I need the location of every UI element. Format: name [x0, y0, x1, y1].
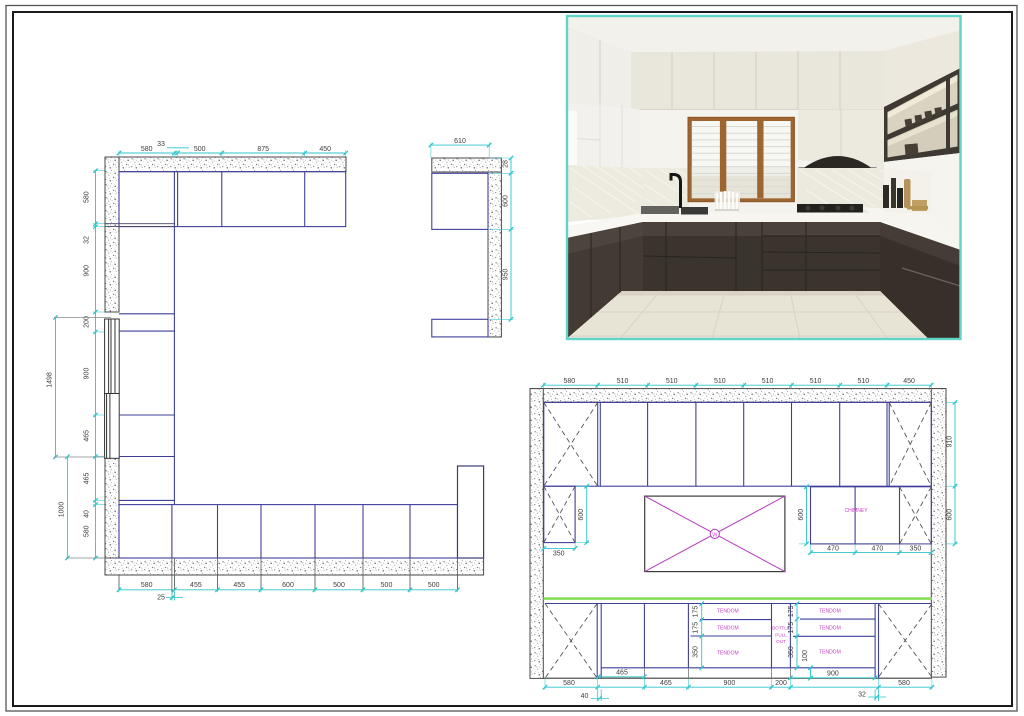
svg-text:1000: 1000: [58, 502, 65, 518]
svg-text:500: 500: [428, 582, 440, 589]
svg-text:40: 40: [581, 693, 589, 700]
svg-text:350: 350: [693, 646, 700, 658]
svg-text:TENDOM: TENDOM: [819, 625, 841, 631]
svg-text:175: 175: [788, 605, 795, 617]
svg-text:580: 580: [84, 525, 91, 537]
svg-text:600: 600: [282, 582, 294, 589]
svg-text:455: 455: [233, 582, 245, 589]
svg-text:580: 580: [141, 146, 153, 153]
svg-text:33: 33: [157, 141, 165, 148]
svg-text:510: 510: [666, 378, 678, 385]
svg-text:510: 510: [714, 378, 726, 385]
svg-text:465: 465: [84, 430, 91, 442]
svg-text:450: 450: [319, 146, 331, 153]
svg-text:465: 465: [660, 680, 672, 687]
svg-text:900: 900: [84, 265, 91, 277]
svg-text:580: 580: [898, 680, 910, 687]
svg-text:CHIMNEY: CHIMNEY: [844, 508, 868, 514]
svg-text:PULL: PULL: [775, 633, 787, 638]
svg-text:455: 455: [190, 582, 202, 589]
svg-text:950: 950: [503, 268, 510, 280]
svg-text:TENDOM: TENDOM: [819, 650, 841, 656]
svg-text:OUT: OUT: [776, 639, 786, 644]
svg-text:32: 32: [84, 236, 91, 244]
svg-text:1498: 1498: [47, 372, 54, 388]
svg-text:TENDOM: TENDOM: [717, 609, 739, 615]
svg-text:470: 470: [827, 545, 839, 552]
svg-text:510: 510: [617, 378, 629, 385]
svg-text:580: 580: [563, 378, 575, 385]
svg-text:500: 500: [194, 146, 206, 153]
svg-text:875: 875: [257, 146, 269, 153]
svg-text:500: 500: [381, 582, 393, 589]
svg-text:465: 465: [616, 670, 628, 677]
svg-text:900: 900: [827, 670, 839, 677]
svg-text:580: 580: [84, 191, 91, 203]
svg-text:32: 32: [858, 692, 866, 699]
svg-text:40: 40: [84, 510, 91, 518]
svg-text:350: 350: [553, 550, 565, 557]
svg-text:TENDOM: TENDOM: [717, 625, 739, 631]
svg-text:600: 600: [578, 509, 585, 521]
svg-text:610: 610: [454, 138, 466, 145]
svg-text:600: 600: [947, 509, 954, 521]
svg-text:600: 600: [503, 195, 510, 207]
svg-text:510: 510: [810, 378, 822, 385]
svg-text:175: 175: [788, 622, 795, 634]
svg-text:175: 175: [693, 606, 700, 618]
svg-text:500: 500: [333, 582, 345, 589]
svg-text:510: 510: [762, 378, 774, 385]
svg-text:25: 25: [157, 595, 165, 602]
svg-text:580: 580: [141, 582, 153, 589]
svg-text:100: 100: [802, 650, 809, 662]
svg-text:200: 200: [775, 680, 787, 687]
svg-text:TENDOM: TENDOM: [717, 651, 739, 657]
svg-text:465: 465: [84, 473, 91, 485]
svg-text:600: 600: [798, 509, 805, 521]
svg-text:900: 900: [724, 680, 736, 687]
svg-text:580: 580: [563, 680, 575, 687]
svg-text:900: 900: [84, 368, 91, 380]
svg-text:470: 470: [872, 545, 884, 552]
svg-text:910: 910: [947, 436, 954, 448]
svg-text:W: W: [712, 532, 718, 538]
svg-text:TENDOM: TENDOM: [819, 609, 841, 615]
svg-text:450: 450: [903, 378, 915, 385]
svg-text:175: 175: [693, 622, 700, 634]
svg-text:350: 350: [788, 646, 795, 658]
svg-text:350: 350: [910, 545, 922, 552]
svg-text:510: 510: [857, 378, 869, 385]
svg-text:28: 28: [503, 160, 510, 168]
